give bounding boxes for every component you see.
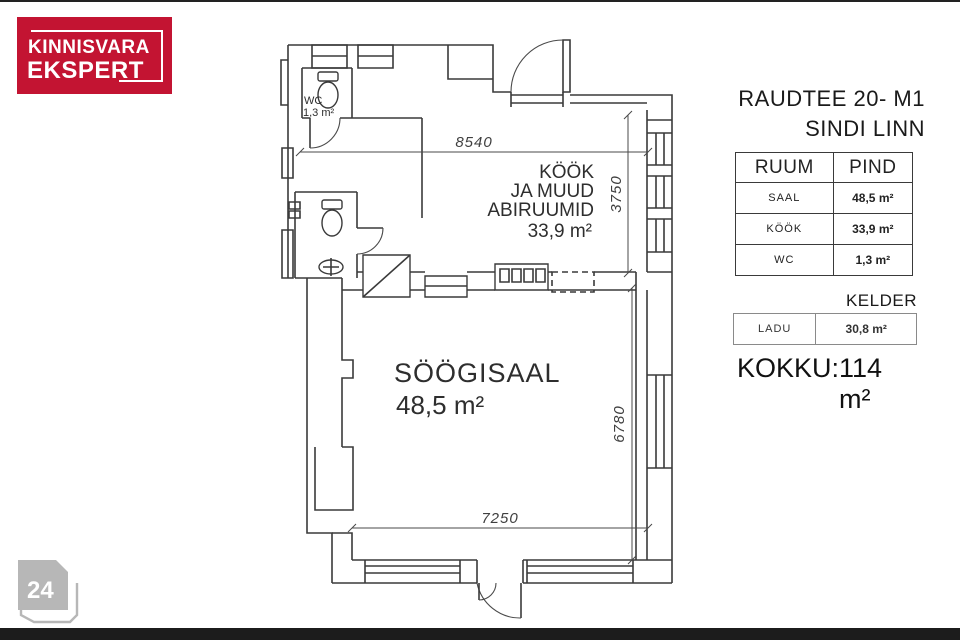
wc-area-label: 1,3 m² [303,107,335,119]
dimension-label-right-lower: 6780 [611,405,628,442]
window [312,45,493,79]
window [365,560,633,583]
bottom-wall [332,560,672,618]
cabinet-diagonal-icon [363,255,410,297]
dimension-label-bottom: 7250 [481,510,518,527]
opening-dashed [552,272,594,292]
right-wall-windows [636,110,672,560]
door-arc [479,583,496,600]
dimension-label-right-upper: 3750 [608,175,625,212]
door-arc [511,40,563,92]
dining-left-wall [307,278,353,583]
plan-walls [281,40,672,618]
wc-label: WC [304,95,322,107]
kitchen-area-label: 33,9 m² [528,221,592,242]
scanned-floor-plan-page: { "page": {"top_bar_color": "#222222", "… [0,0,960,640]
entry-door-top [511,40,570,107]
kitchen-label-line3: ABIRUUMID [487,200,594,221]
dimension-lines [296,111,652,564]
dining-area-label: 48,5 m² [396,390,484,420]
radiator-icon [282,148,300,278]
floor-drain-icon [319,258,343,276]
kitchen-label-line2: JA MUUD [511,181,594,202]
dimension-label-top: 8540 [455,134,492,151]
toilet-icon [322,200,342,236]
floor-plan: 8540 3750 6780 7250 KÖÖK JA MUUD ABIRUUM… [0,0,960,640]
divider-wall [342,255,636,297]
door-arc [477,583,521,618]
kitchen-label-line1: KÖÖK [539,162,594,183]
door-arc [357,228,383,254]
door-arc [310,118,340,148]
radiator-icon [425,276,467,297]
dimension-right-lower [628,284,636,564]
dimension-right-upper [624,111,632,277]
entry-door-bottom [477,583,521,618]
stove-icon [495,264,548,290]
dining-room-label: SÖÖGISAAL [394,358,561,388]
